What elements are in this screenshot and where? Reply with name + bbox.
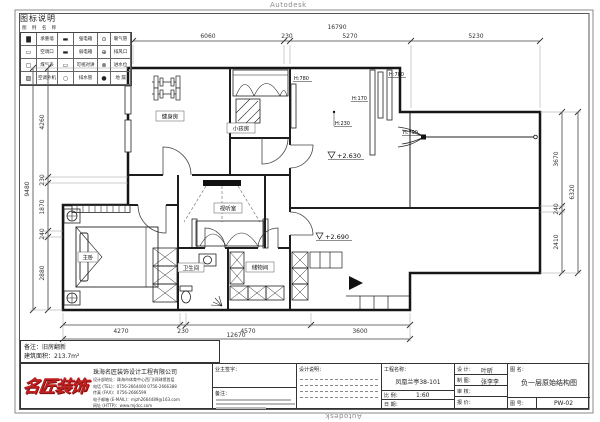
north-marker — [349, 276, 363, 290]
owner-cell: 业主签字： 备注： — [212, 364, 296, 408]
legend-subtitle: 图 例 名 称 — [22, 25, 132, 31]
price-label: 报 价： — [457, 399, 474, 406]
design-note-line — [300, 397, 378, 398]
company-info: 珠海名匠装饰设计工程有限公司 设计部地址：珠海市体育中心西门(网球馆首层 电话 … — [93, 367, 211, 410]
legend-icon: ▨ — [21, 72, 37, 85]
scale-value: 1:60 — [416, 392, 429, 399]
exterior-walls — [63, 68, 540, 310]
legend-icon: ○ — [58, 72, 74, 85]
bath-fixtures — [180, 254, 222, 306]
drawing-no: PW-02 — [537, 398, 590, 409]
legend-icon: ● — [98, 72, 111, 85]
callout-h780a: H:780 — [294, 76, 309, 82]
legend-icon: ▇ — [21, 33, 37, 46]
legend-label: 地 漏 — [111, 72, 131, 85]
nightstand-lamp — [64, 209, 80, 305]
legend-label: 排风口 — [111, 46, 131, 59]
dim-top-seg2: 230 — [281, 33, 293, 40]
project-cell: 工程名称： 凤凰兰亭38-101 比 例： 1:60 日 期： — [381, 364, 454, 408]
dim-right-seg3: 2410 — [553, 234, 560, 249]
roof-antenna — [398, 127, 537, 147]
legend-label: 空调外机 — [37, 72, 58, 85]
callout-h230: H:230 — [335, 121, 350, 127]
dim-left-overall: 9480 — [24, 181, 31, 196]
scale-label: 比 例： — [384, 392, 401, 399]
callout-h170: H:170 — [352, 96, 367, 102]
design-notes-cell: 设计说明： — [296, 364, 381, 408]
company-name: 珠海名匠装饰设计工程有限公司 — [93, 367, 211, 376]
legend-icon: ⊙ — [98, 33, 111, 46]
legend-label: 承重墙 — [37, 33, 58, 46]
project-label: 工程名称： — [384, 366, 409, 373]
doors — [138, 138, 313, 248]
legend-icon: ▭ — [58, 59, 74, 72]
room-label-bath: 卫生间 — [183, 264, 200, 272]
legend-icon: ▬ — [58, 33, 74, 46]
room-label-kids: 小孩房 — [233, 125, 250, 133]
legend-label: 煤气表 — [37, 59, 58, 72]
dim-left-seg4: 240 — [39, 228, 46, 240]
dim-top-seg1: 6060 — [200, 33, 215, 40]
drawing-no-label: 图 号： — [510, 400, 527, 407]
autodesk-watermark-top: Autodesk — [270, 1, 307, 9]
extension-lines — [30, 45, 581, 341]
design-note-line — [300, 385, 378, 386]
callout-h780b: H:780 — [389, 72, 404, 78]
design-note-line — [300, 391, 378, 392]
drawing-name-cell: 图 名： 负一层原始结构图 图 号： PW-02 — [507, 364, 590, 408]
level-lower: +2.690 — [325, 233, 349, 241]
remark-renovation: 备注：旧房翻新 — [24, 343, 216, 352]
legend-panel: 图标说明 图 例 名 称 ▇ 承重墙 ▬ 强电箱 ⊙ 暖气管 ▭ 空调口 ▬ 弱… — [20, 13, 132, 86]
legend-label: 弱电箱 — [74, 46, 98, 59]
owner-remark-label: 备注： — [215, 390, 230, 397]
company-web: 网址 (HTTP)：www.mjdcc.com — [93, 403, 211, 410]
date-label: 日 期： — [384, 401, 401, 408]
designer-name: 叶昕 — [481, 366, 493, 375]
autodesk-watermark-bottom: Autodesk — [325, 412, 362, 420]
room-label-av: 视听室 — [220, 205, 237, 213]
dim-right-overall: 6320 — [569, 184, 576, 199]
owner-sign-label: 业主签字： — [215, 366, 240, 373]
dim-top-seg4: 5230 — [468, 33, 483, 40]
company-logo: 名匠装饰 — [21, 372, 89, 397]
dim-right-seg1: 3670 — [553, 151, 560, 166]
design-note-line — [300, 379, 378, 380]
legend-icon: ⊕ — [98, 46, 111, 59]
checker-label: 审 核： — [457, 388, 474, 395]
dim-bottom-seg2: 230 — [177, 328, 189, 335]
level-marks: +2.630 +2.690 — [316, 152, 364, 241]
company-cell: 名匠装饰 珠海名匠装饰设计工程有限公司 设计部地址：珠海市体育中心西门(网球馆首… — [21, 364, 212, 408]
legend-icon: ▬ — [58, 46, 74, 59]
legend-label: 强电箱 — [74, 33, 98, 46]
legend-title: 图标说明 — [20, 13, 132, 24]
callout-h790: H:790 — [403, 130, 418, 136]
dim-left-seg3: 1870 — [39, 199, 46, 214]
title-block: 名匠装饰 珠海名匠装饰设计工程有限公司 设计部地址：珠海市体育中心西门(网球馆首… — [20, 363, 589, 409]
dim-bottom-seg4: 3600 — [352, 328, 367, 335]
gym-equipment — [152, 76, 180, 100]
room-label-master: 主卧 — [82, 254, 94, 262]
staff-cell: 设 计： 叶昕 制 图： 张李李 审 核： 报 价： — [454, 364, 507, 408]
legend-label: 排水管 — [74, 72, 98, 85]
dim-left-seg1: 4260 — [39, 114, 46, 129]
designer-label: 设 计： — [457, 366, 474, 373]
level-upper: +2.630 — [337, 152, 361, 160]
room-label-gym: 健身房 — [162, 113, 179, 121]
legend-icon: ▭ — [21, 46, 37, 59]
dim-bottom-seg1: 4270 — [113, 328, 128, 335]
drawing-sheet: 16790 6060 230 5270 5230 9480 4260 230 1… — [0, 0, 600, 422]
legend-label: 可视对讲 — [74, 59, 98, 72]
drafter-label: 制 图： — [457, 377, 474, 384]
fine-print-line — [216, 399, 291, 401]
av-sofa — [192, 219, 268, 248]
tatami-mat — [236, 99, 260, 123]
legend-label: 进水位 — [111, 59, 131, 72]
remarks-box: 备注：旧房翻新 建筑面积：213.7m² — [20, 340, 220, 363]
projector-tv — [184, 180, 260, 222]
fine-print-line — [216, 407, 266, 409]
fine-print-line — [216, 403, 295, 405]
dim-right-seg2: 240 — [553, 203, 560, 215]
legend-label: 空调口 — [37, 46, 58, 59]
legend-icon: ▢ — [21, 59, 37, 72]
dim-left-seg2: 230 — [39, 174, 46, 186]
drafter-name: 张李李 — [481, 377, 499, 386]
room-label-storage: 储物间 — [252, 264, 269, 272]
kids-bed — [233, 70, 288, 96]
remark-area: 建筑面积：213.7m² — [24, 352, 216, 361]
drawing-name-label: 图 名： — [510, 366, 527, 373]
dim-top-overall: 16790 — [327, 24, 346, 31]
dim-left-seg5: 2880 — [39, 265, 46, 280]
legend-icon: ⊗ — [98, 59, 111, 72]
legend-label: 暖气管 — [111, 33, 131, 46]
dim-bottom-overall: 12670 — [226, 332, 245, 339]
entry-steps — [310, 252, 410, 310]
windows — [72, 70, 392, 213]
legend-table: ▇ 承重墙 ▬ 强电箱 ⊙ 暖气管 ▭ 空调口 ▬ 弱电箱 ⊕ 排风口 ▢ 煤气… — [20, 32, 132, 86]
dim-top-seg3: 5270 — [342, 33, 357, 40]
wardrobe-cabinets — [153, 248, 308, 302]
design-note-label: 设计说明： — [299, 366, 324, 373]
